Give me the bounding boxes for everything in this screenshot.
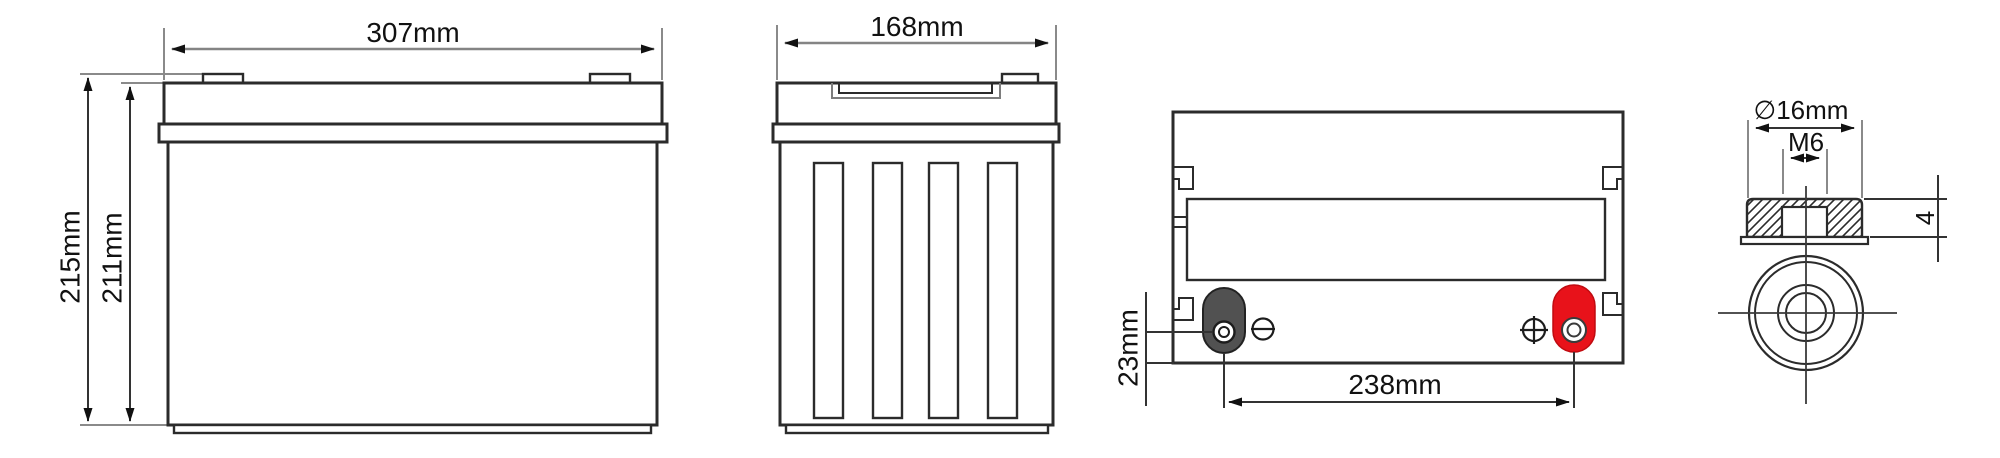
negative-symbol-icon — [1251, 319, 1275, 340]
positive-terminal-post — [1562, 318, 1586, 342]
side-view: 168mm — [773, 11, 1059, 433]
positive-terminal — [1553, 285, 1595, 352]
front-case-height-dimension: 211mm — [97, 87, 131, 421]
nut-height-label: 4 — [1910, 211, 1940, 225]
front-total-height-dimension: 215mm — [55, 78, 89, 421]
terminal-diameter-dimension: ∅16mm — [1754, 95, 1854, 128]
side-rib — [929, 163, 958, 418]
battery-lid — [164, 83, 662, 124]
front-view: 307mm 215mm 211mm — [55, 17, 668, 433]
side-depth-dimension: 168mm — [785, 11, 1048, 43]
battery-body — [168, 142, 657, 425]
side-rib — [814, 163, 843, 418]
battery-base — [786, 425, 1048, 433]
negative-terminal-post — [1214, 322, 1235, 343]
front-width-dimension: 307mm — [172, 17, 654, 49]
battery-lid — [777, 83, 1056, 124]
side-rib — [873, 163, 902, 418]
thread-label: M6 — [1788, 127, 1824, 157]
front-case-height-label: 211mm — [97, 212, 128, 303]
top-view: 23mm 238mm — [1113, 112, 1624, 408]
lid-collar — [159, 124, 667, 142]
technical-drawing: 307mm 215mm 211mm 168mm — [0, 0, 2000, 458]
nut-height-dimension: 4 — [1864, 175, 1947, 262]
battery-base — [174, 425, 651, 433]
front-width-label: 307mm — [366, 17, 459, 48]
side-depth-label: 168mm — [870, 11, 963, 42]
vent-recess — [1187, 199, 1605, 280]
negative-terminal — [1203, 288, 1245, 353]
front-total-height-label: 215mm — [55, 210, 86, 303]
terminal-diameter-label: ∅16mm — [1754, 95, 1849, 125]
lid-collar — [773, 124, 1059, 142]
thread-hole — [1782, 207, 1827, 237]
terminal-offset-label: 23mm — [1113, 309, 1144, 387]
terminal-detail-view: ∅16mm M6 4 — [1718, 95, 1947, 404]
terminal-pitch-label: 238mm — [1348, 369, 1441, 400]
side-rib — [988, 163, 1017, 418]
nut-flange — [1741, 237, 1868, 244]
thread-dimension: M6 — [1788, 127, 1824, 158]
